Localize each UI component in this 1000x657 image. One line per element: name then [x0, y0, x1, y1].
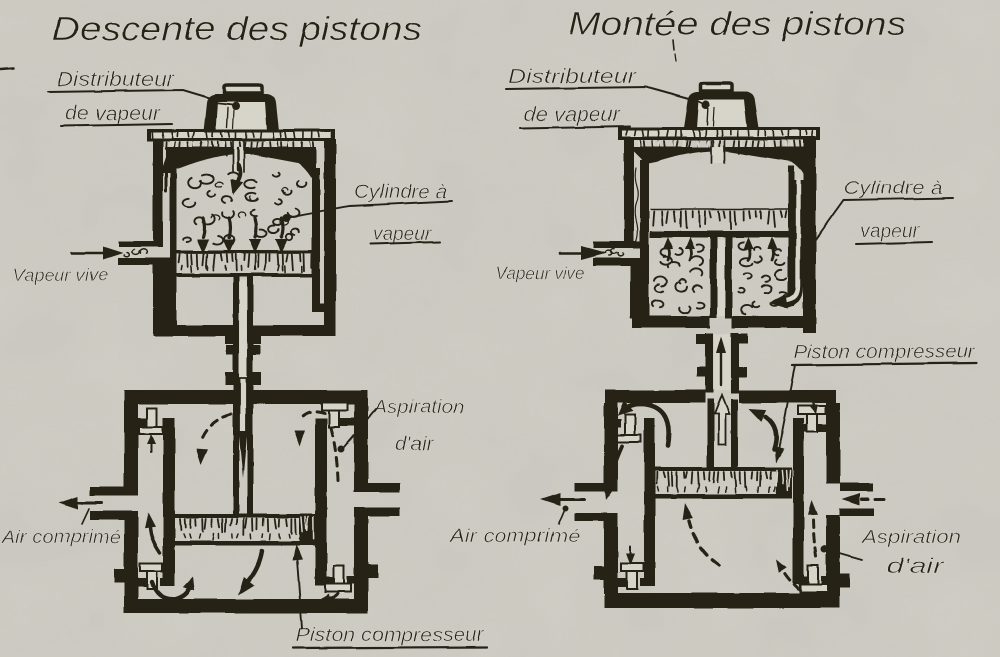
svg-text:Distributeur: Distributeur [57, 69, 176, 91]
svg-text:Vapeur vive: Vapeur vive [13, 265, 108, 285]
svg-text:Piston compresseur: Piston compresseur [793, 342, 976, 363]
svg-text:d'air: d'air [886, 555, 945, 578]
svg-text:de vapeur: de vapeur [524, 104, 621, 126]
svg-text:Aspiration: Aspiration [373, 397, 464, 417]
svg-text:Air comprimé: Air comprimé [449, 526, 580, 546]
svg-text:Piston compresseur: Piston compresseur [296, 625, 485, 646]
svg-text:Vapeur vive: Vapeur vive [495, 263, 585, 283]
svg-text:Aspiration: Aspiration [861, 527, 961, 547]
svg-text:Air comprimé: Air comprimé [1, 527, 121, 547]
svg-text:Descente des pistons: Descente des pistons [52, 11, 422, 48]
svg-text:Cylindre à: Cylindre à [354, 182, 447, 203]
svg-text:Distributeur: Distributeur [508, 66, 638, 88]
svg-text:de vapeur: de vapeur [65, 103, 161, 125]
svg-text:d'air: d'air [395, 433, 435, 455]
svg-text:vapeur: vapeur [860, 221, 920, 242]
svg-text:Montée des pistons: Montée des pistons [568, 6, 906, 43]
svg-text:Cylindre à: Cylindre à [844, 178, 943, 199]
